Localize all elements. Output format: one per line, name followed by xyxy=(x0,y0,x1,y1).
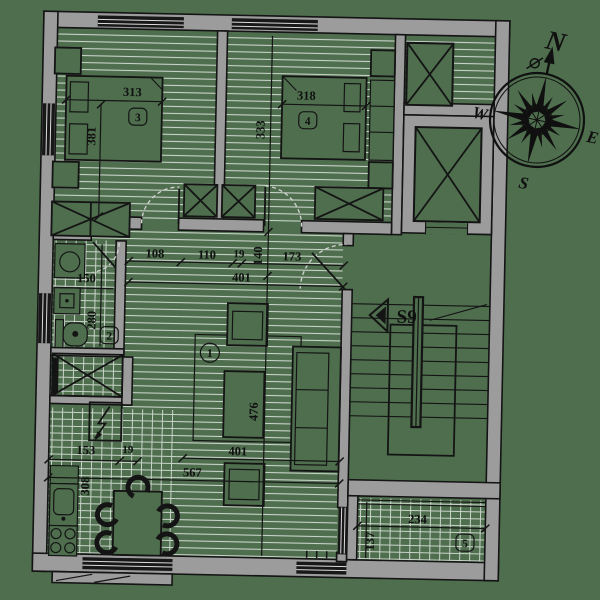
dim-hall-a: 108 xyxy=(145,246,164,260)
door-leaf-bedroom-b xyxy=(265,187,266,226)
toilet-tank xyxy=(55,320,64,348)
duct-shaft xyxy=(406,43,453,106)
room-tag-balcony-number: 5 xyxy=(462,538,468,550)
dim-kitchen-a: 153 xyxy=(76,443,95,457)
wall-stairs-balcony xyxy=(348,480,500,499)
room-tag-living-number: 1 xyxy=(207,348,213,360)
wall-bath-east xyxy=(114,241,126,357)
dim-bedroom-b-depth: 333 xyxy=(253,120,267,139)
stairs-label: S9 xyxy=(396,307,417,328)
nightstand xyxy=(368,162,393,188)
balcony-door-window xyxy=(338,507,348,553)
dim-kitchen-b: 19 xyxy=(122,444,134,456)
window-kitchen xyxy=(82,557,172,571)
window-bath xyxy=(38,293,51,343)
dim-hall-d: 173 xyxy=(282,249,301,263)
nightstand xyxy=(52,161,79,188)
dining-table xyxy=(113,491,162,556)
dim-bath-width: 150 xyxy=(77,271,96,285)
dim-kitchen-total: 567 xyxy=(183,465,202,479)
wall-hall-north-2 xyxy=(178,218,263,232)
dim-kitchen-depth: 308 xyxy=(78,477,92,496)
elevator xyxy=(413,127,481,235)
window-bedroom-a xyxy=(98,15,184,28)
dim-hall-total: 401 xyxy=(232,270,251,284)
dim-bedroom-b-width: 318 xyxy=(297,89,316,103)
bed-b xyxy=(281,76,367,160)
shower-screen xyxy=(52,357,59,393)
wall-apartment-east-3 xyxy=(337,553,347,561)
elevator-door-gap xyxy=(425,222,467,235)
floor-plan: 313 381 318 333 108 110 19 173 401 140 1… xyxy=(0,0,600,600)
counter xyxy=(50,465,78,484)
dim-bedroom-a-width: 313 xyxy=(123,85,142,99)
window-bedroom-b xyxy=(232,18,318,31)
door-leaf-bedroom-a xyxy=(179,189,180,224)
window-west-1 xyxy=(42,103,55,155)
window-living xyxy=(296,562,346,575)
dim-balcony-depth: 137 xyxy=(363,532,377,551)
dim-hall-c: 19 xyxy=(233,248,245,260)
dim-balcony-width: 234 xyxy=(408,512,428,526)
nightstand xyxy=(371,50,396,76)
dim-bath-depth: 280 xyxy=(84,311,98,330)
nightstand xyxy=(55,47,82,74)
dim-hall-e: 140 xyxy=(251,246,265,265)
room-tag-bedroom-b-number: 4 xyxy=(305,116,311,128)
shelf-column xyxy=(369,80,395,160)
dim-living-depth: 476 xyxy=(246,402,260,421)
room-tag-bath-number: 2 xyxy=(106,331,112,343)
floor-balcony xyxy=(357,498,486,563)
room-tag-bedroom-a-number: 3 xyxy=(135,112,141,124)
wall-apartment-east-1 xyxy=(343,234,353,246)
bed-a xyxy=(65,76,163,162)
wall-hall-north-3 xyxy=(301,221,391,235)
dim-bedroom-a-depth: 381 xyxy=(84,127,98,146)
sofa xyxy=(290,346,341,471)
dim-hall-b: 110 xyxy=(198,247,216,261)
dim-living-width: 401 xyxy=(228,444,247,458)
